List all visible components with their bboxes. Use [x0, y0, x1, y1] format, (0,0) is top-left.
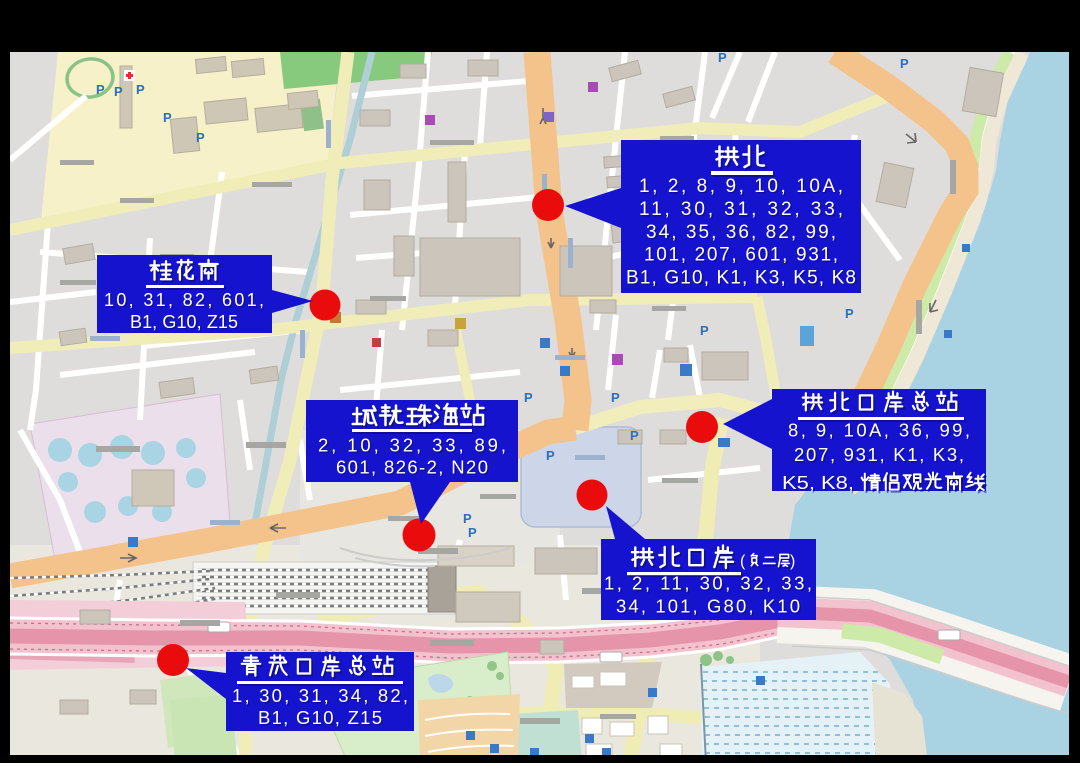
svg-text:P: P — [630, 428, 639, 443]
svg-text:K5, K8,: K5, K8, — [782, 472, 854, 493]
svg-text:P: P — [718, 50, 727, 65]
svg-text:1, 30, 31, 34, 82,: 1, 30, 31, 34, 82, — [232, 685, 408, 706]
svg-text:(: ( — [740, 553, 746, 570]
svg-text:P: P — [96, 82, 105, 97]
svg-text:P: P — [463, 511, 472, 526]
svg-text:P: P — [136, 82, 145, 97]
svg-text:10, 31, 82, 601,: 10, 31, 82, 601, — [104, 290, 264, 310]
svg-text:P: P — [700, 323, 709, 338]
svg-text:207, 931, K1, K3,: 207, 931, K1, K3, — [794, 444, 964, 465]
svg-text:1, 2, 8, 9, 10, 10A,: 1, 2, 8, 9, 10, 10A, — [639, 176, 843, 197]
svg-text:B1, G10, Z15: B1, G10, Z15 — [130, 312, 238, 332]
svg-text:B1, G10, Z15: B1, G10, Z15 — [258, 707, 382, 728]
svg-text:P: P — [196, 130, 205, 145]
svg-text:P: P — [163, 110, 172, 125]
svg-text:P: P — [524, 390, 533, 405]
svg-text:P: P — [845, 306, 854, 321]
svg-text:P: P — [900, 56, 909, 71]
svg-text:): ) — [790, 553, 795, 570]
svg-text:34, 35, 36, 82, 99,: 34, 35, 36, 82, 99, — [646, 222, 836, 243]
svg-text:P: P — [546, 448, 555, 463]
svg-text:1, 2, 11, 30, 32, 33,: 1, 2, 11, 30, 32, 33, — [604, 573, 812, 594]
svg-text:P: P — [114, 84, 123, 99]
svg-text:P: P — [468, 525, 477, 540]
svg-text:11, 30, 31, 32, 33,: 11, 30, 31, 32, 33, — [639, 199, 843, 220]
svg-text:601, 826-2, N20: 601, 826-2, N20 — [336, 457, 488, 478]
svg-text:34, 101, G80, K10: 34, 101, G80, K10 — [616, 596, 800, 617]
svg-text:8, 9, 10A, 36, 99,: 8, 9, 10A, 36, 99, — [788, 420, 970, 441]
svg-text:101, 207, 601, 931,: 101, 207, 601, 931, — [644, 245, 838, 266]
svg-text:P: P — [611, 390, 620, 405]
